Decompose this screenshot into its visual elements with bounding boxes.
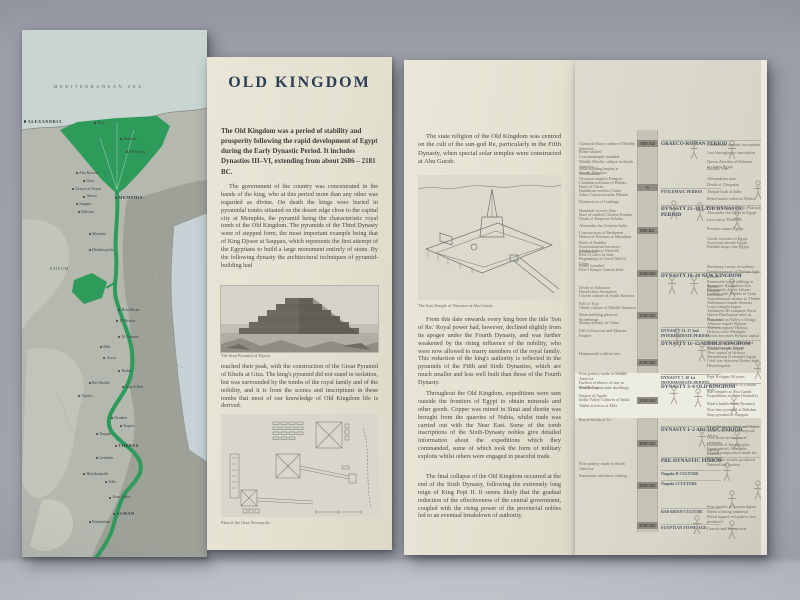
map-site-label: Meir: [100, 346, 111, 350]
figure-sketch-icon: [670, 328, 684, 348]
map-site-label: Bet Khallaf: [89, 382, 110, 386]
figure-sketch-icon: [687, 140, 701, 160]
map-site-label: Saqqara: [76, 203, 92, 207]
map-site-label: Kom Ombo: [109, 496, 131, 500]
old-kingdom-panel: OLD KINGDOM The Old Kingdom was a period…: [207, 57, 392, 550]
figure-sketch-icon: [725, 140, 739, 160]
figure-sketch-icon: [667, 385, 681, 405]
figure-sketch-icon: [687, 275, 701, 295]
map-site-label: Bubastis: [120, 138, 137, 142]
figure-sketch-icon: [751, 180, 765, 200]
map-site-label: Nag el-Deir: [122, 386, 144, 390]
figure-sketch-icon: [695, 342, 709, 362]
map-site-label: MEDITERRANEAN SEA: [53, 85, 143, 90]
map-site-label: Buto: [94, 122, 105, 126]
page-title: OLD KINGDOM: [207, 74, 392, 92]
sun-temple-drawing: [418, 175, 561, 300]
map-site-label: El-Bersha: [116, 320, 135, 324]
map-site-label: Abusir: [83, 195, 97, 199]
figure-sketch-icon: [727, 395, 741, 415]
figure-sketch-icon: [667, 200, 681, 220]
drawing-caption: The Sun Temple of Niuserre at Abu Gurab.: [418, 304, 561, 309]
map-site-label: Naqada: [96, 433, 111, 437]
map-site-label: Dendera: [111, 417, 127, 421]
figure-sketch-icon: [720, 462, 734, 482]
figure-sketch-icon: [725, 278, 739, 298]
map-site-label: Koptos: [120, 425, 134, 429]
photo-of-exhibit-panels: MEDITERRANEAN SEAALEXANDRIAButoBubastisH…: [0, 0, 800, 600]
map-site-label: MEMPHIS: [115, 196, 144, 200]
map-site-label: Badari: [118, 370, 132, 374]
religion-paragraph-1: The state religion of the Old Kingdom wa…: [418, 133, 561, 166]
figure-sketch-icon: [725, 520, 739, 540]
map-site-label: Zawyet el-Aryan: [72, 188, 101, 192]
map-site-label: Meydum: [89, 233, 106, 237]
map-site-label: FAIYUM: [50, 267, 69, 271]
map-site-label: Hierakonpolis: [83, 473, 108, 477]
figure-sketch-icon: [751, 360, 765, 380]
intro-paragraph: The Old Kingdom was a period of stabilit…: [221, 126, 378, 177]
figure-sketch-icon: [691, 388, 705, 408]
figure-sketch-icon: [725, 490, 739, 510]
body-paragraph-2: reached their peak, with the constructio…: [221, 363, 378, 410]
figure-sketch-icon: [730, 430, 744, 450]
map-panel: MEDITERRANEAN SEAALEXANDRIAButoBubastisH…: [22, 30, 207, 557]
religion-paragraph-4: The final collapse of the Old Kingdom oc…: [418, 473, 561, 520]
map-site-label: Giza: [83, 180, 94, 184]
religion-panel: The state religion of the Old Kingdom wa…: [404, 60, 575, 555]
map-site-label: Beni Hasan: [118, 309, 139, 313]
map-site-label: Asyut: [103, 357, 116, 361]
religion-paragraph-3: Throughout the Old Kingdom, expeditions …: [418, 390, 561, 461]
figure-sketch-icon: [690, 515, 704, 535]
figure-sketch-icon: [665, 275, 679, 295]
map-labels: MEDITERRANEAN SEAALEXANDRIAButoBubastisH…: [22, 30, 207, 557]
figure-sketch-icon: [751, 480, 765, 500]
map-site-label: Gebelein: [96, 457, 113, 461]
map-site-label: Abydos: [78, 395, 93, 399]
plan-caption: Plan of the Giza Necropolis: [221, 521, 378, 526]
map-site-label: THEBES: [115, 444, 139, 448]
map-site-label: ASWAN: [113, 512, 135, 516]
photo-caption: The Step Pyramid of Djoser: [221, 354, 378, 359]
giza-necropolis-plan: [221, 414, 378, 517]
map-site-label: Elephantine: [89, 521, 111, 525]
map-site-label: Abu Rawash: [76, 172, 99, 176]
figure-sketch-icon: [730, 210, 744, 230]
timeline-panel: Classical Maya culture of Middle America…: [575, 60, 767, 555]
map-site-label: ALEXANDRIA: [24, 120, 62, 124]
map-site-label: Herakleopolis: [89, 249, 114, 253]
figure-sketch-icon: [693, 202, 707, 222]
map-site-label: Edfu: [105, 481, 116, 485]
religion-paragraph-2: From this date onwards every king bore t…: [418, 316, 561, 387]
map-site-label: El-Amarna: [118, 336, 138, 340]
period-illustrations: [575, 60, 767, 555]
step-pyramid-photo: [221, 286, 378, 352]
figure-sketch-icon: [695, 428, 709, 448]
body-paragraph-1: The government of the country was concen…: [221, 183, 378, 270]
map-site-label: Dahshur: [78, 211, 94, 215]
map-site-label: Heliopolis: [126, 151, 145, 155]
